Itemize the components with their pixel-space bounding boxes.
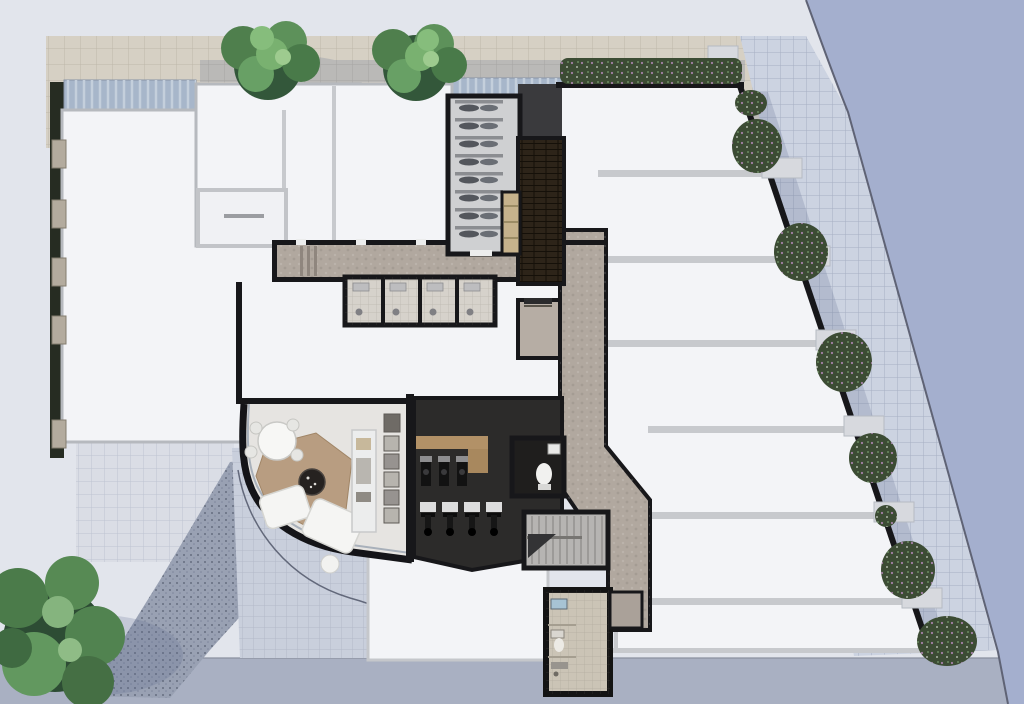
locker — [384, 414, 400, 432]
locker — [384, 508, 399, 523]
shower-drain — [554, 672, 559, 677]
pod-shower — [467, 309, 474, 316]
shower-room-basin — [551, 599, 567, 609]
concrete-landing — [610, 592, 642, 628]
pod-shower — [356, 309, 363, 316]
apartment-wall — [606, 340, 824, 347]
pod-sink — [390, 283, 406, 291]
console-item — [356, 438, 371, 450]
pod-divider — [381, 279, 385, 323]
console-item — [356, 492, 371, 502]
door-gap — [296, 239, 306, 245]
door-gap — [356, 239, 366, 245]
gym-wood-bench — [416, 436, 488, 449]
door-gap — [416, 239, 426, 245]
door-stub — [52, 200, 66, 228]
gym-wood-block — [468, 449, 488, 473]
ramp-stripe — [314, 246, 317, 276]
entry-canopy-left-glass — [64, 80, 196, 112]
door-stub — [52, 420, 66, 448]
shower-room-toilet-tank — [551, 630, 564, 638]
door-stub — [52, 316, 66, 344]
bottom-room — [368, 556, 548, 660]
apartment-wall — [616, 598, 910, 605]
locker — [384, 472, 399, 487]
shrub-strip-top-flowers — [560, 58, 742, 84]
apartment-wall — [648, 512, 882, 519]
connector — [844, 416, 884, 436]
partition — [332, 86, 336, 244]
pod-sink — [353, 283, 369, 291]
corridor-end-cap — [272, 240, 277, 282]
console-item — [356, 458, 371, 484]
wall-mid-left — [236, 282, 242, 404]
closet — [502, 192, 520, 254]
door-stub — [52, 140, 66, 168]
gym-wc-toilet — [536, 463, 552, 485]
storage-counter — [224, 214, 264, 218]
pod-shower — [430, 309, 437, 316]
shower-room-toilet — [554, 638, 564, 652]
ground-shower-room — [546, 590, 610, 694]
pod-shower — [393, 309, 400, 316]
side-table — [321, 555, 339, 573]
site-plan-svg — [0, 0, 1024, 704]
bike-room-door — [470, 250, 492, 256]
elevator-threshold — [524, 298, 552, 304]
site-plan — [0, 0, 1024, 704]
apartment-wall — [598, 170, 770, 177]
ramp-stripe — [307, 246, 310, 276]
stair-core — [524, 512, 608, 568]
ramp-stripe — [300, 246, 303, 276]
lobby-wall-north — [240, 398, 410, 404]
pod-divider — [418, 279, 422, 323]
shower-divider — [548, 624, 576, 626]
shower-divider — [548, 656, 576, 658]
locker — [384, 490, 399, 505]
service-shaft — [518, 138, 564, 284]
pod-sink — [427, 283, 443, 291]
pod-divider — [455, 279, 459, 323]
locker — [384, 454, 399, 469]
corridor-wall-south-a — [276, 277, 350, 282]
door-stub — [52, 258, 66, 286]
shower-pods — [345, 277, 495, 325]
shower-fixture — [551, 662, 568, 669]
apartment-wall — [648, 426, 852, 433]
locker — [384, 436, 399, 451]
gym-wc-toilet-tank — [538, 484, 551, 490]
gym-machines — [420, 456, 468, 486]
corridor-ramp-stripes — [300, 246, 317, 276]
gym-wc-basin — [548, 444, 560, 454]
core-mass-top — [518, 84, 562, 140]
elevator — [518, 300, 560, 358]
pod-sink — [464, 283, 480, 291]
apartment-wall-bottom — [612, 648, 934, 653]
